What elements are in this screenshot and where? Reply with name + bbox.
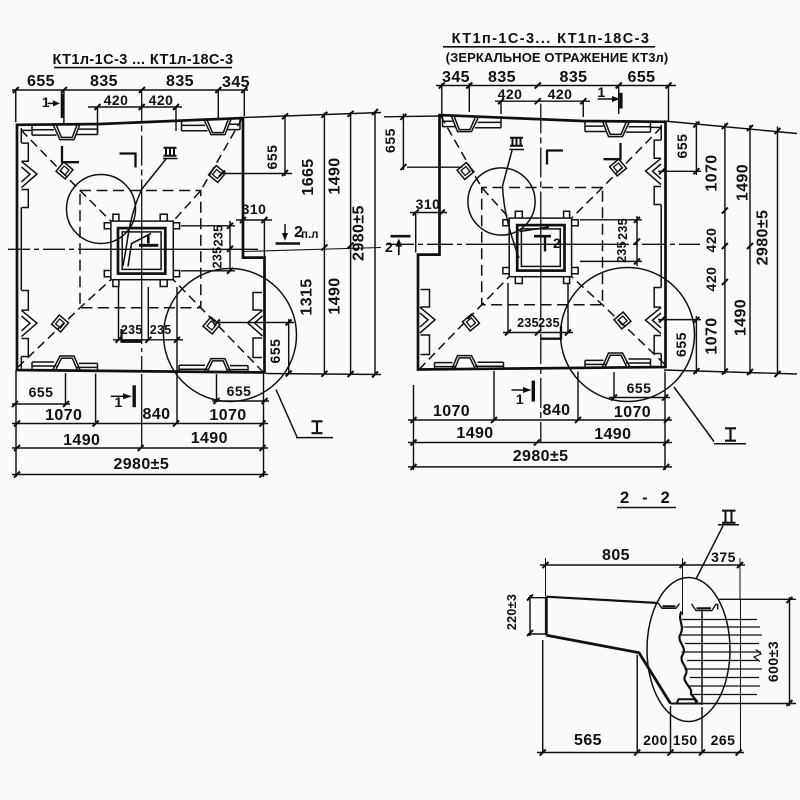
svg-text:420: 420 <box>703 267 719 292</box>
svg-text:600±3: 600±3 <box>765 641 781 682</box>
svg-text:2 - 2: 2 - 2 <box>620 489 674 507</box>
svg-text:235: 235 <box>616 218 630 240</box>
svg-text:235: 235 <box>615 241 629 263</box>
svg-text:п.л: п.л <box>301 229 318 241</box>
svg-text:1070: 1070 <box>433 403 470 420</box>
svg-text:805: 805 <box>602 547 630 564</box>
svg-text:375: 375 <box>711 549 736 565</box>
svg-text:835: 835 <box>560 69 588 86</box>
svg-text:220±3: 220±3 <box>505 594 519 630</box>
svg-text:235: 235 <box>538 316 560 330</box>
svg-text:200: 200 <box>643 732 668 748</box>
svg-text:1070: 1070 <box>614 404 651 421</box>
svg-text:1: 1 <box>42 94 50 110</box>
svg-text:835: 835 <box>166 73 194 90</box>
svg-text:1070: 1070 <box>209 407 246 424</box>
svg-text:420: 420 <box>104 92 129 108</box>
svg-text:2980±5: 2980±5 <box>513 448 569 465</box>
svg-text:655: 655 <box>267 339 283 364</box>
svg-text:1070: 1070 <box>704 154 721 191</box>
svg-text:1490: 1490 <box>735 164 752 201</box>
svg-text:2980±5: 2980±5 <box>351 205 368 261</box>
svg-text:655: 655 <box>627 380 652 396</box>
svg-text:655: 655 <box>264 145 280 170</box>
svg-text:1070: 1070 <box>704 317 721 354</box>
svg-text:2: 2 <box>553 235 561 251</box>
svg-text:420: 420 <box>548 86 573 102</box>
svg-text:235: 235 <box>211 247 225 269</box>
svg-text:655: 655 <box>382 128 398 153</box>
svg-text:150: 150 <box>673 732 698 748</box>
svg-text:1490: 1490 <box>63 432 100 449</box>
svg-text:420: 420 <box>149 92 174 108</box>
svg-text:2980±5: 2980±5 <box>113 456 169 473</box>
svg-text:235: 235 <box>121 323 143 337</box>
svg-text:565: 565 <box>574 732 602 749</box>
svg-text:310: 310 <box>242 201 267 217</box>
svg-text:235: 235 <box>517 316 539 330</box>
svg-text:1490: 1490 <box>327 157 344 194</box>
svg-text:655: 655 <box>27 73 55 90</box>
svg-text:655: 655 <box>673 332 689 357</box>
svg-text:(ЗЕРКАЛЬНОЕ ОТРАЖЕНИЕ КТ3л): (ЗЕРКАЛЬНОЕ ОТРАЖЕНИЕ КТ3л) <box>446 50 669 65</box>
svg-text:1490: 1490 <box>733 299 750 336</box>
svg-text:655: 655 <box>628 69 656 86</box>
svg-text:345: 345 <box>222 74 250 91</box>
svg-text:КТ1л-1С-3 ... КТ1л-18С-3: КТ1л-1С-3 ... КТ1л-18С-3 <box>52 52 233 68</box>
svg-text:1490: 1490 <box>327 277 344 314</box>
svg-text:835: 835 <box>488 69 516 86</box>
svg-text:235: 235 <box>212 225 226 247</box>
svg-text:КТ1п-1С-3... КТ1п-18С-3: КТ1п-1С-3... КТ1п-18С-3 <box>452 31 651 47</box>
svg-text:655: 655 <box>29 384 54 400</box>
svg-text:1315: 1315 <box>299 278 316 315</box>
svg-text:265: 265 <box>711 732 736 748</box>
svg-text:310: 310 <box>416 196 441 212</box>
svg-text:840: 840 <box>543 402 571 419</box>
svg-text:235: 235 <box>150 323 172 337</box>
svg-text:835: 835 <box>90 73 118 90</box>
svg-text:1070: 1070 <box>45 407 82 424</box>
svg-text:420: 420 <box>498 86 523 102</box>
svg-text:655: 655 <box>227 383 252 399</box>
svg-text:1490: 1490 <box>191 430 228 447</box>
svg-text:1665: 1665 <box>300 158 317 195</box>
svg-text:1: 1 <box>516 391 524 407</box>
svg-text:1490: 1490 <box>456 425 493 442</box>
svg-text:345: 345 <box>442 69 470 86</box>
svg-text:2: 2 <box>385 239 393 255</box>
svg-text:420: 420 <box>703 228 719 253</box>
svg-text:655: 655 <box>674 134 690 159</box>
svg-text:1490: 1490 <box>594 426 631 443</box>
svg-text:2980±5: 2980±5 <box>755 210 772 266</box>
svg-text:840: 840 <box>143 406 171 423</box>
svg-text:1: 1 <box>597 84 605 100</box>
